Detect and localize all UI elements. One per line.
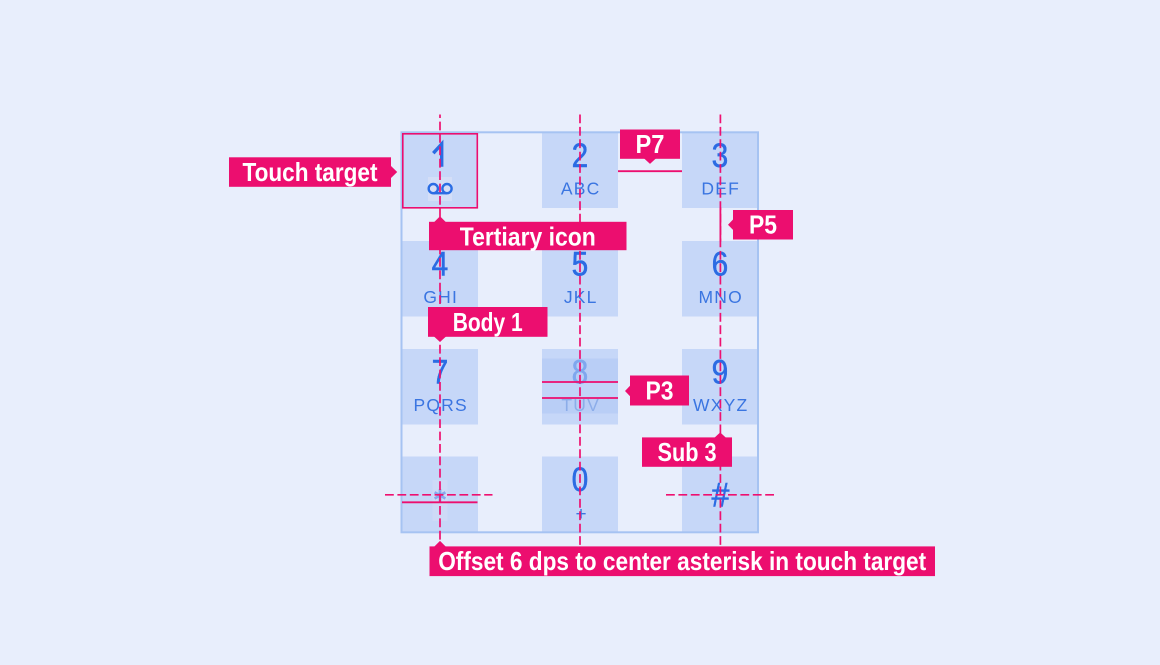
svg-text:Tertiary icon: Tertiary icon	[460, 221, 596, 251]
svg-text:P3: P3	[646, 376, 674, 406]
svg-text:P5: P5	[749, 210, 777, 240]
svg-text:Offset 6 dps to center asteris: Offset 6 dps to center asterisk in touch…	[438, 546, 926, 576]
svg-text:Body 1: Body 1	[453, 307, 523, 337]
svg-text:P7: P7	[636, 129, 665, 159]
svg-text:+: +	[575, 504, 586, 525]
svg-text:Sub 3: Sub 3	[658, 437, 717, 467]
svg-text:Touch target: Touch target	[243, 157, 378, 187]
